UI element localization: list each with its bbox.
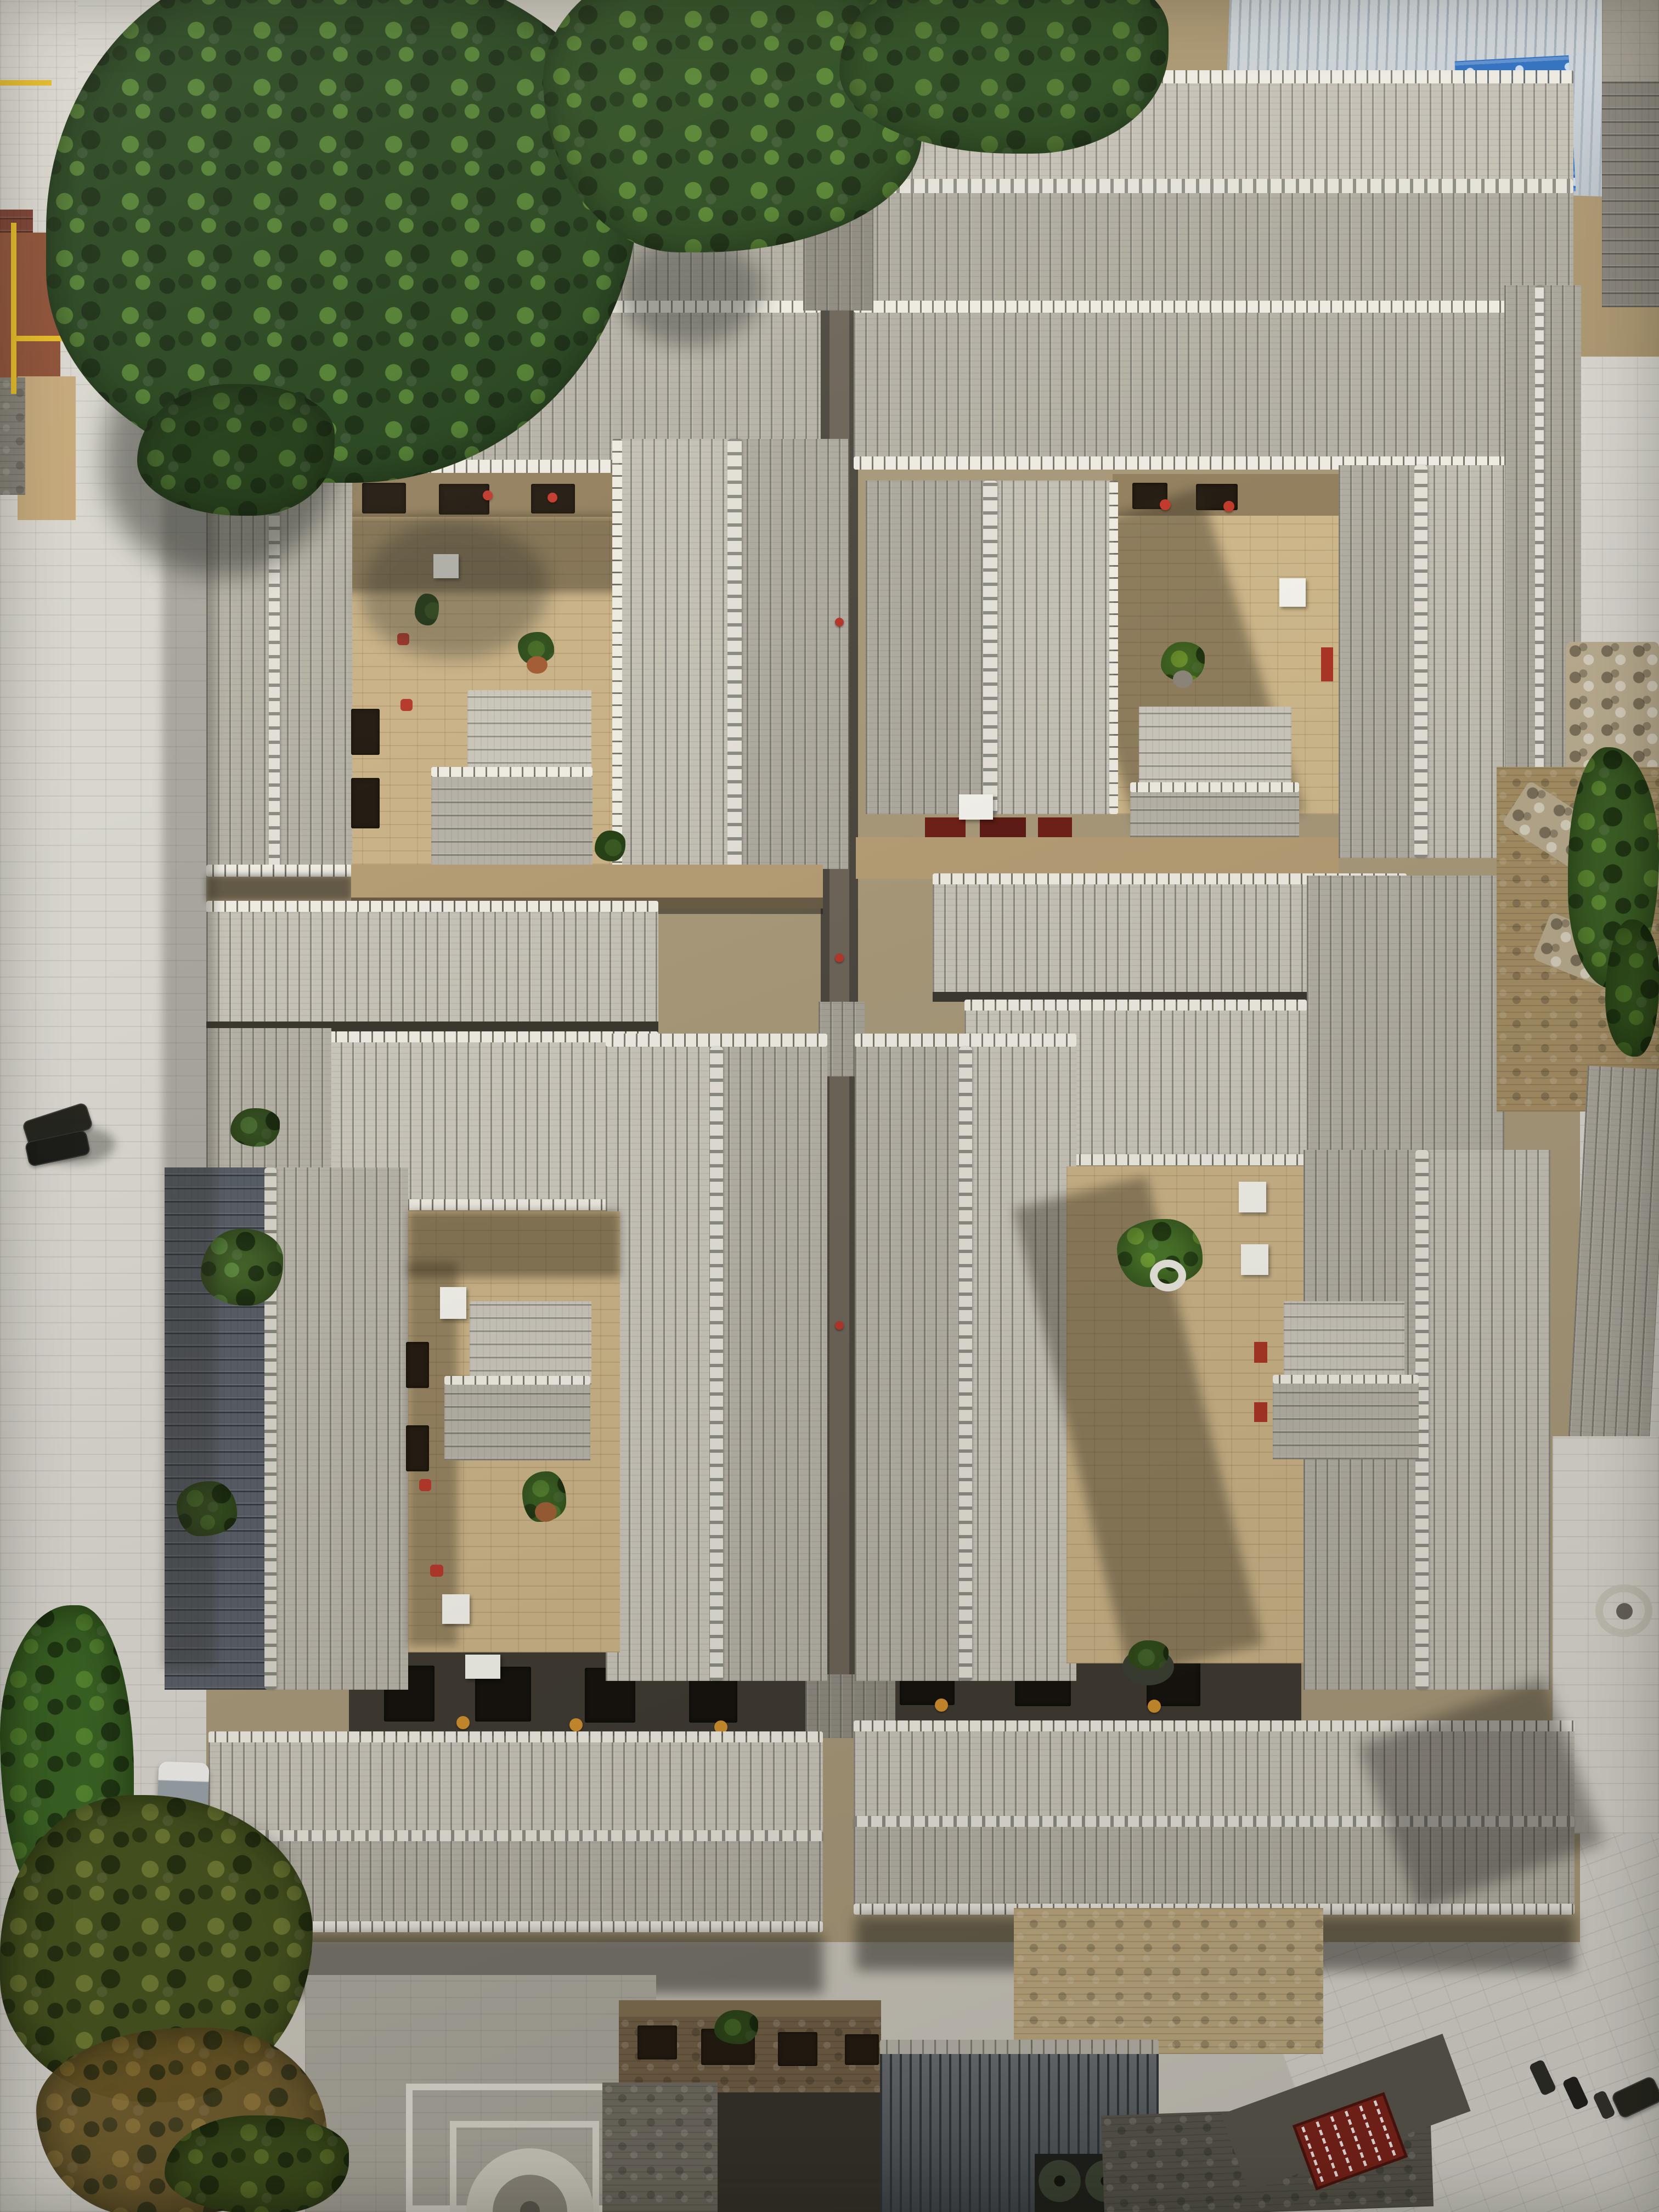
west-wing-shadow — [206, 876, 352, 901]
big-roof-1L-east — [735, 439, 848, 869]
big-roof-1R-eaves — [1109, 481, 1118, 814]
white-box-2L-a — [440, 1287, 466, 1319]
alley-lantern-b — [835, 953, 844, 962]
red-hanging-1R — [1321, 647, 1333, 681]
walkway-R — [856, 837, 1339, 879]
long-roof-R-west — [855, 1047, 966, 1681]
pot-2L — [535, 1502, 557, 1522]
door-1L-west-b — [351, 778, 380, 828]
top-band-R-eaves2 — [854, 301, 1573, 313]
band-L-eaves — [208, 1731, 823, 1743]
long-roof-R-cap — [855, 1034, 1076, 1047]
long-roof-L-west — [606, 1047, 716, 1681]
top-band-R-south — [854, 193, 1573, 307]
adobe-hole-a — [637, 2025, 677, 2059]
topright-roof — [1602, 81, 1659, 307]
long-roof-L-ridge — [710, 1047, 723, 1681]
door-1L-b — [439, 484, 489, 515]
stool-2L-a — [419, 1479, 431, 1491]
red-2R-a — [1254, 1342, 1267, 1363]
roof-segE-R — [1307, 876, 1504, 1155]
small-wing-1L-eaves — [431, 767, 592, 777]
alley-lantern-c — [835, 1321, 844, 1330]
mat-R-a — [925, 817, 966, 837]
small-wing-1L-lower — [431, 775, 592, 869]
corrugated-top-edge — [880, 2040, 1159, 2055]
door-2L-b — [406, 1425, 429, 1471]
big-roof-1R-east — [990, 481, 1114, 814]
lantern-1L-b — [548, 493, 557, 503]
door-2L-a — [406, 1342, 429, 1388]
pipe-top — [0, 80, 52, 86]
pipe-vertical — [11, 223, 16, 394]
long-roof-R-ridge — [959, 1047, 972, 1681]
roof-M2R-cap — [964, 1000, 1307, 1012]
stool-1L-b — [400, 699, 413, 711]
big-roof-1R-west — [866, 481, 990, 814]
band-L-north — [208, 1742, 823, 1837]
long-roof-L-east — [716, 1047, 827, 1681]
lantern-1L-a — [483, 490, 493, 500]
corner-gray-roofs — [0, 377, 25, 495]
ac-box-1R — [1279, 578, 1306, 607]
bonsai-pot-2R — [1150, 1260, 1186, 1291]
mat-R-b — [980, 817, 1026, 837]
roof-M1L-slope — [206, 912, 658, 1028]
moto-shadow — [33, 1126, 115, 1164]
white-box-2L-c — [465, 1655, 500, 1679]
small-wing-1L-upper — [467, 690, 591, 777]
lantern-stand-1R-a — [1160, 499, 1171, 510]
lantern-BR-b — [1148, 1700, 1161, 1713]
small-wing-2L-lower — [444, 1383, 590, 1460]
small-wing-1R-upper — [1139, 707, 1291, 793]
millwheel-core — [1616, 1603, 1633, 1620]
small-wing-2R-eaves — [1273, 1375, 1419, 1384]
small-wing-2L-eaves — [444, 1376, 590, 1385]
small-wing-2L-upper — [470, 1301, 591, 1385]
east-roof-1R-ridge — [1414, 465, 1427, 858]
stool-2L-b — [430, 1565, 443, 1577]
red-2R-b — [1254, 1402, 1267, 1422]
bush-walkway — [595, 831, 625, 861]
scene — [0, 0, 1659, 2212]
east-roof-3R-east — [1422, 1150, 1550, 1690]
canopy-lobe — [137, 384, 335, 516]
dark-roof-east-slope — [272, 1167, 408, 1690]
tree-shadow-roof-2 — [620, 236, 763, 346]
small-wing-1R-eaves — [1130, 782, 1299, 792]
adobe-hole-c — [778, 2032, 817, 2066]
west-wing-L-eaves — [206, 865, 352, 877]
lantern-stand-1R-b — [1223, 501, 1234, 512]
tan-patch-bottom — [1014, 1908, 1323, 2054]
vine-3 — [230, 1108, 280, 1147]
mat-R-c — [1038, 817, 1072, 837]
tree-right-2 — [1605, 919, 1659, 1057]
aerial-photo-canvas — [0, 0, 1659, 2212]
dark-tile-roof — [602, 2083, 718, 2212]
roof-segW-slope — [206, 1028, 331, 1172]
east-roof-1R-west — [1339, 465, 1422, 858]
second-slope-right — [854, 305, 1572, 464]
top-band-R-ridge — [854, 179, 1573, 194]
lantern-BL-b — [569, 1718, 583, 1731]
small-wing-2R-upper — [1284, 1301, 1404, 1384]
lantern-BR-a — [935, 1699, 948, 1712]
big-roof-1L-west — [619, 439, 735, 869]
white-box-2L-b — [442, 1594, 470, 1624]
big-roof-1R-ridge — [983, 481, 997, 814]
dark-pot-plant-2R — [1128, 1640, 1169, 1670]
green-bush-bottom — [714, 2010, 758, 2044]
east-roof-1R-east — [1422, 465, 1505, 858]
band-L-ridge — [208, 1830, 823, 1842]
alley-lantern-a — [835, 618, 844, 627]
white-box-walkR — [959, 794, 993, 820]
lantern-BL-a — [456, 1716, 470, 1729]
roof-M1L-cap — [206, 901, 658, 913]
door-1L-a — [362, 483, 406, 513]
tree-shadow-court — [362, 521, 549, 658]
corner-tan-wall — [18, 376, 76, 520]
long-roof-L-cap — [606, 1034, 827, 1047]
big-roof-1L-eaves — [612, 439, 622, 869]
pot-1R — [1173, 670, 1193, 688]
pot-1L — [527, 656, 548, 674]
ac-box-2R-b — [1241, 1244, 1268, 1275]
ac-box-2R-a — [1239, 1182, 1266, 1212]
adobe-hole-d — [845, 2034, 879, 2065]
small-wing-2R-lower — [1273, 1381, 1419, 1459]
door-1L-west-a — [351, 709, 380, 755]
big-roof-1L-ridge — [727, 439, 742, 869]
